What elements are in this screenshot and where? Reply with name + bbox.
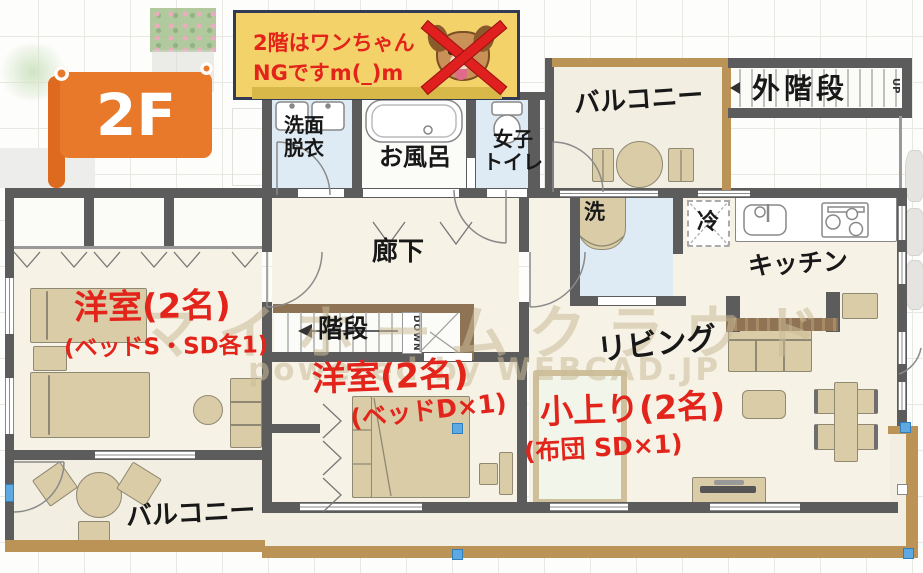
chair — [592, 148, 614, 182]
bath-label: お風呂 — [379, 144, 451, 172]
chair — [668, 148, 694, 182]
balcony-trim — [5, 540, 265, 552]
wall — [673, 196, 683, 254]
stone-path — [905, 260, 923, 310]
outside-stairs-label: 外階段 — [752, 73, 848, 105]
wall-line — [899, 116, 902, 190]
selection-handle[interactable] — [903, 548, 914, 559]
toilet-label: 女子 トイレ — [483, 128, 543, 174]
coffee-table — [742, 390, 786, 419]
selection-handle[interactable] — [900, 422, 911, 433]
chair — [479, 463, 498, 485]
round-table — [76, 472, 122, 518]
selection-handle[interactable] — [452, 423, 463, 434]
window — [95, 451, 195, 459]
balcony-wall — [552, 58, 728, 67]
closet-post — [84, 198, 94, 248]
wall — [728, 58, 908, 68]
bed-pillow-line — [48, 375, 50, 435]
fridge-label: 冷 — [697, 210, 719, 235]
bedroom-a-closet-floor — [14, 198, 262, 248]
flowerbed-icon — [150, 8, 216, 52]
wall — [728, 108, 908, 118]
round-table — [193, 395, 223, 425]
door-opening — [298, 189, 344, 197]
round-table — [616, 141, 663, 188]
washer-label: 洗 — [584, 200, 605, 224]
wall — [902, 58, 912, 118]
sofa-cushion-line — [230, 401, 262, 403]
nightstand — [33, 346, 67, 371]
notice-line1: 2階はワンちゃん — [253, 27, 415, 57]
stairs-label: 階段 — [318, 315, 368, 344]
notice-line2: NGですm(_)m — [253, 57, 403, 87]
window — [898, 382, 906, 410]
balcony-bottom-floor — [262, 512, 918, 548]
closet-post — [164, 198, 174, 248]
floorplan-canvas: DOWN — [0, 0, 923, 573]
balcony-trim — [262, 546, 918, 558]
door-opening — [487, 189, 527, 197]
toilet-label-line1: 女子 — [483, 128, 543, 151]
wall — [272, 424, 320, 433]
toilet-label-line2: トイレ — [483, 151, 543, 174]
wall — [262, 188, 272, 252]
window — [898, 206, 906, 240]
bed-pillow-line — [46, 291, 48, 340]
window — [300, 503, 422, 511]
floor-banner-label: 2F — [60, 72, 212, 158]
bedroom-a-label: 洋室(2名) — [74, 287, 231, 329]
door-opening — [363, 189, 459, 197]
window — [710, 503, 800, 511]
ghost-fixture — [232, 108, 264, 186]
wall — [519, 188, 529, 252]
notice-gold-strip — [252, 87, 502, 99]
window — [5, 278, 14, 334]
tv-base — [714, 480, 744, 485]
balcony-wall — [722, 62, 731, 190]
door-opening — [467, 158, 475, 188]
selected-window[interactable] — [5, 484, 14, 502]
kitchen-label: キッチン — [747, 247, 848, 281]
window — [5, 378, 14, 434]
counter-cabinet — [842, 293, 878, 319]
window — [560, 190, 658, 197]
dining-table — [834, 382, 858, 462]
selection-handle[interactable] — [452, 549, 463, 560]
washroom-label: 洗面 脱衣 — [284, 114, 324, 160]
sofa — [230, 378, 262, 448]
window — [550, 503, 628, 511]
bedroom-a-detail: (ベッドS・SD各1) — [64, 332, 269, 362]
outside-stairs-up-label: UP — [890, 78, 901, 93]
corridor-label: 廊下 — [372, 238, 424, 268]
kitchen-counter — [735, 196, 897, 242]
desk — [499, 452, 513, 495]
wall — [262, 92, 272, 196]
koagari-label: 小上り(2名) — [539, 387, 725, 431]
sofa-cushion-line — [230, 424, 262, 426]
window — [898, 332, 906, 364]
wall — [545, 58, 554, 198]
stone-path — [905, 150, 923, 202]
washroom-label-line1: 洗面 — [284, 114, 324, 137]
window — [698, 190, 750, 197]
selection-handle[interactable] — [897, 484, 908, 495]
tv — [700, 486, 756, 493]
closet-line — [14, 246, 262, 249]
window — [898, 252, 906, 284]
wall — [352, 92, 362, 196]
washroom-label-line2: 脱衣 — [284, 137, 324, 160]
floor-banner: 2F — [48, 64, 228, 194]
